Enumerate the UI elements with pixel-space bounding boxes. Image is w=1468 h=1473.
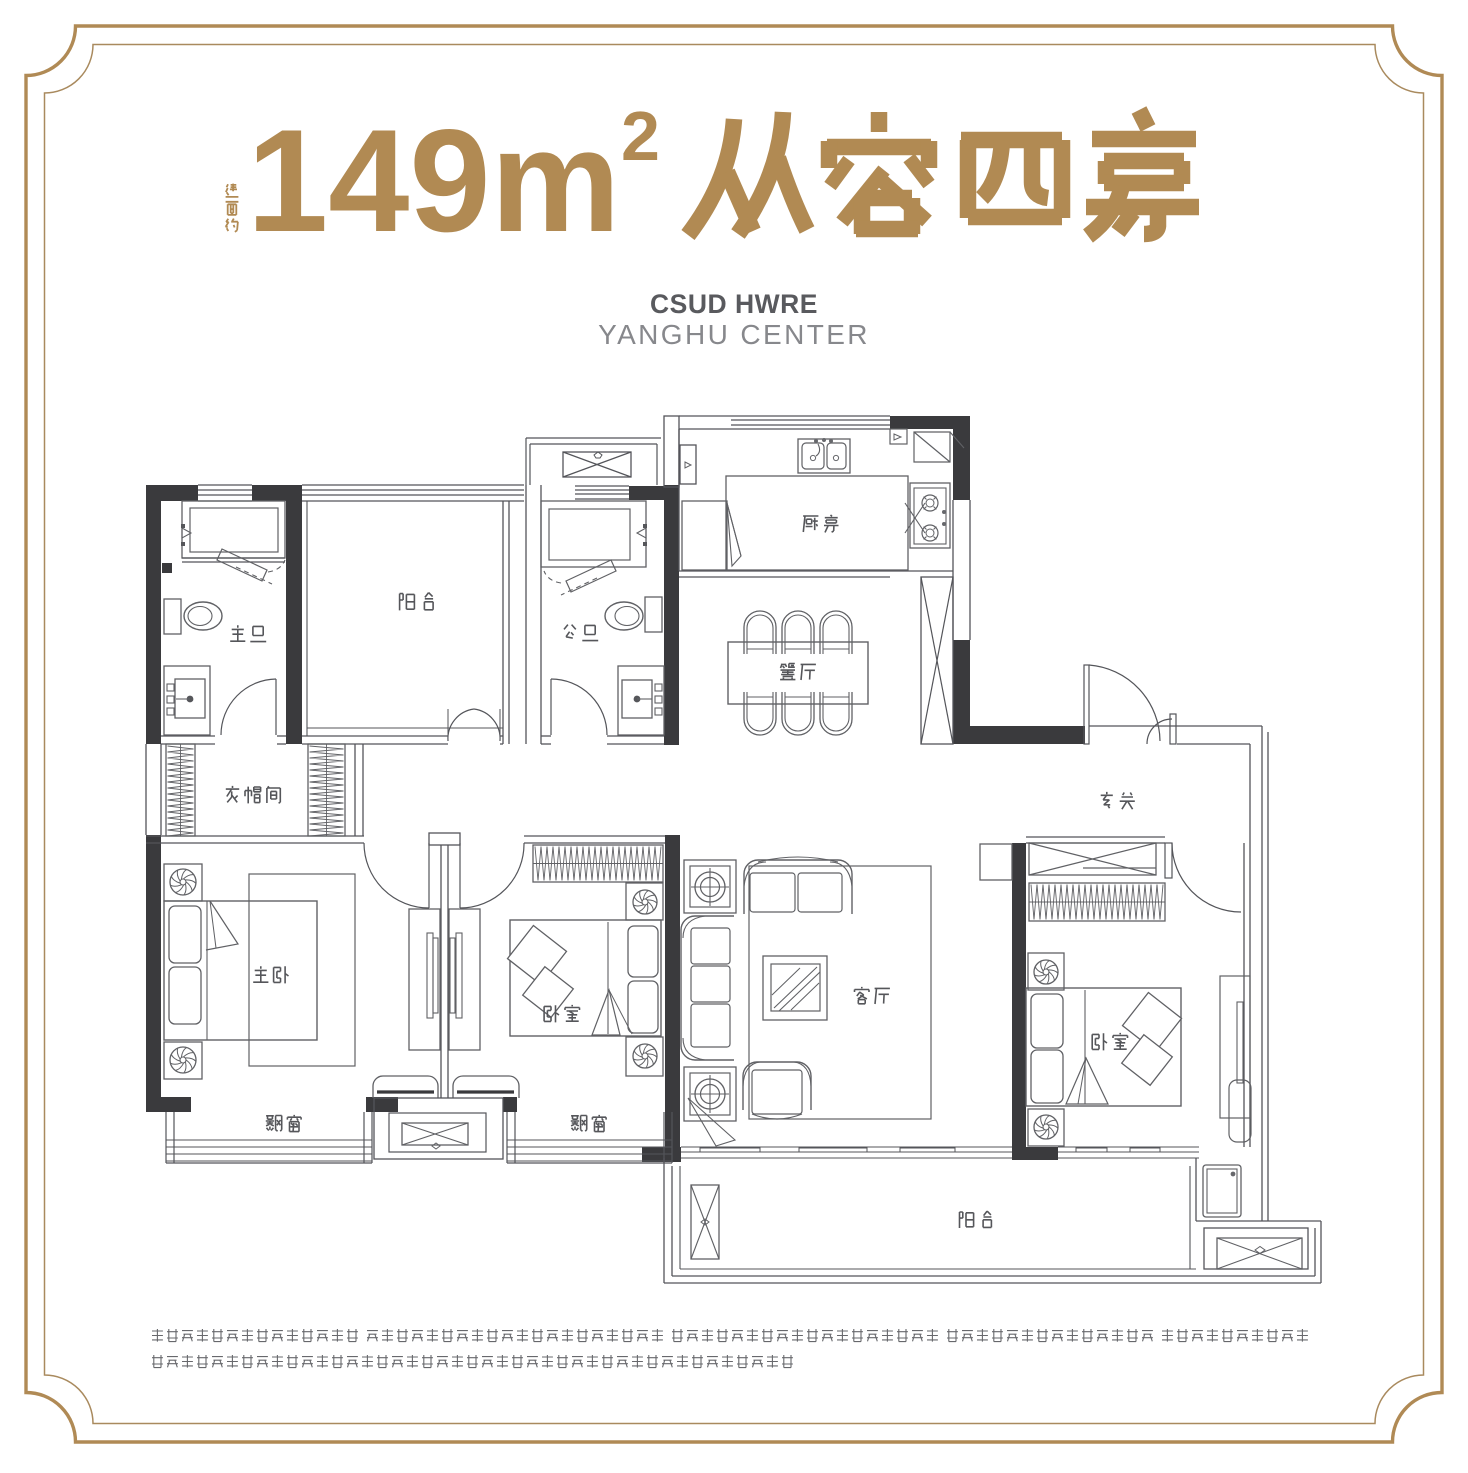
svg-text:CSUD HWRE: CSUD HWRE [650,289,818,319]
svg-text:YANGHU CENTER: YANGHU CENTER [598,319,870,350]
svg-text:149m: 149m [247,99,620,262]
svg-text:2: 2 [621,97,660,175]
